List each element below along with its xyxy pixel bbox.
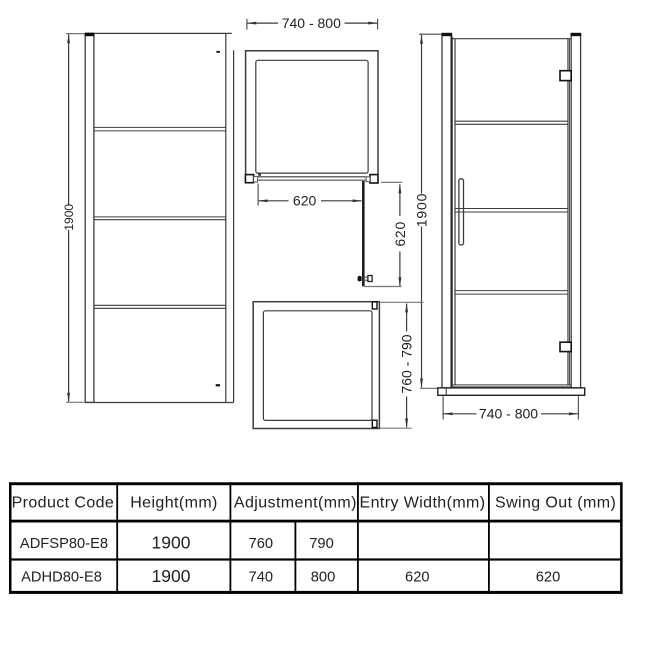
svg-text:Entry Width(mm): Entry Width(mm) <box>360 495 486 512</box>
svg-text:620: 620 <box>293 193 317 209</box>
svg-text:740 - 800: 740 - 800 <box>479 405 538 421</box>
svg-text:ADHD80-E8: ADHD80-E8 <box>21 570 102 586</box>
svg-text:800: 800 <box>311 570 336 586</box>
svg-text:1900: 1900 <box>414 193 430 227</box>
svg-text:Product Code: Product Code <box>12 495 115 512</box>
svg-text:1900: 1900 <box>152 566 191 586</box>
svg-text:620: 620 <box>536 570 561 586</box>
svg-text:740 - 800: 740 - 800 <box>282 15 341 31</box>
svg-text:1900: 1900 <box>62 204 76 231</box>
svg-text:1900: 1900 <box>152 532 191 552</box>
svg-text:740: 740 <box>249 570 274 586</box>
svg-text:Height(mm): Height(mm) <box>130 495 218 512</box>
svg-text:Adjustment(mm): Adjustment(mm) <box>234 495 357 512</box>
svg-text:760 - 790: 760 - 790 <box>399 334 415 393</box>
svg-text:620: 620 <box>392 221 408 247</box>
svg-text:790: 790 <box>309 536 334 552</box>
svg-text:620: 620 <box>405 570 430 586</box>
svg-text:760: 760 <box>249 536 274 552</box>
svg-text:ADFSP80-E8: ADFSP80-E8 <box>20 536 108 552</box>
svg-text:Swing Out (mm): Swing Out (mm) <box>495 495 616 512</box>
